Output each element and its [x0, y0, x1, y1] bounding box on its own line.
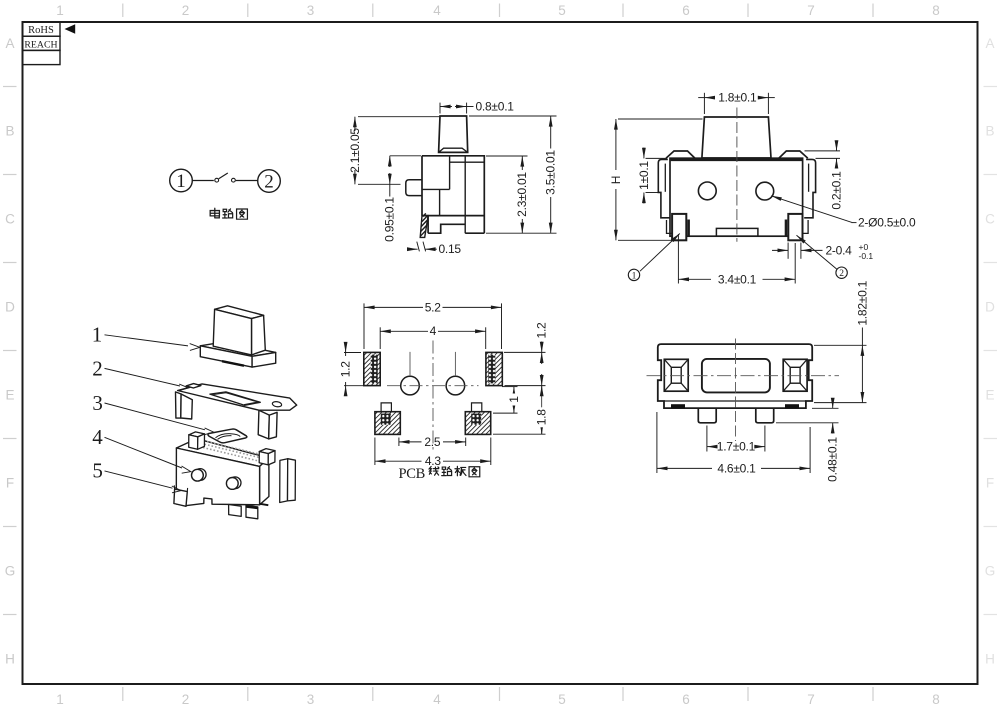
svg-text:F: F [986, 476, 994, 491]
svg-text:C: C [5, 212, 15, 227]
svg-text:E: E [5, 388, 14, 403]
svg-text:3: 3 [307, 3, 315, 18]
svg-text:0.95±0.1: 0.95±0.1 [383, 197, 397, 242]
svg-text:2: 2 [839, 269, 844, 279]
svg-text:8: 8 [932, 692, 940, 707]
svg-text:2: 2 [182, 3, 190, 18]
svg-text:0.15: 0.15 [439, 242, 462, 256]
svg-text:2-0.4: 2-0.4 [826, 243, 853, 257]
svg-text:A: A [985, 36, 994, 51]
svg-text:1: 1 [56, 3, 64, 18]
svg-text:1.8: 1.8 [535, 409, 549, 426]
svg-text:5: 5 [558, 3, 566, 18]
svg-text:1: 1 [176, 171, 186, 192]
svg-text:F: F [6, 476, 14, 491]
svg-text:1.2: 1.2 [339, 361, 353, 378]
svg-text:3: 3 [307, 692, 315, 707]
svg-text:1: 1 [92, 323, 103, 347]
svg-text:G: G [5, 564, 16, 579]
svg-text:C: C [985, 212, 995, 227]
svg-text:H: H [5, 652, 15, 667]
svg-text:4.3: 4.3 [425, 454, 442, 468]
svg-text:6: 6 [682, 3, 690, 18]
svg-text:2-Ø0.5±0.0: 2-Ø0.5±0.0 [858, 216, 916, 230]
svg-text:8: 8 [932, 3, 940, 18]
svg-text:7: 7 [807, 692, 815, 707]
svg-text:PCB: PCB [399, 466, 426, 482]
svg-text:B: B [5, 124, 14, 139]
svg-text:4: 4 [430, 324, 437, 338]
svg-text:2: 2 [92, 356, 103, 380]
svg-text:3.4±0.1: 3.4±0.1 [718, 272, 757, 286]
svg-text:REACH: REACH [24, 39, 57, 50]
svg-text:6: 6 [682, 692, 690, 707]
svg-text:1±0.1: 1±0.1 [637, 161, 651, 190]
svg-text:1: 1 [56, 692, 64, 707]
svg-text:1.82±0.1: 1.82±0.1 [855, 280, 869, 325]
svg-text:1.8±0.1: 1.8±0.1 [718, 91, 757, 105]
svg-text:2: 2 [182, 692, 190, 707]
svg-text:1: 1 [507, 396, 521, 403]
svg-text:5: 5 [92, 459, 103, 483]
svg-text:H: H [609, 176, 623, 184]
svg-text:5: 5 [558, 692, 566, 707]
svg-text:RoHS: RoHS [28, 25, 54, 36]
svg-text:4: 4 [92, 425, 103, 449]
svg-text:4.6±0.1: 4.6±0.1 [717, 461, 756, 475]
svg-text:1.2: 1.2 [535, 322, 549, 339]
svg-text:2.1±0.05: 2.1±0.05 [348, 128, 362, 173]
svg-text:1: 1 [632, 271, 637, 281]
svg-text:7: 7 [807, 3, 815, 18]
svg-text:E: E [985, 388, 994, 403]
svg-text:-0.1: -0.1 [859, 251, 874, 261]
svg-text:4: 4 [433, 3, 441, 18]
svg-text:3.5±0.01: 3.5±0.01 [544, 150, 558, 195]
svg-text:3: 3 [92, 391, 103, 415]
svg-text:H: H [985, 652, 995, 667]
svg-text:2.3±0.01: 2.3±0.01 [515, 172, 529, 217]
svg-text:D: D [5, 300, 15, 315]
svg-text:2.5: 2.5 [424, 435, 441, 449]
svg-text:A: A [5, 36, 14, 51]
svg-text:4: 4 [433, 692, 441, 707]
svg-text:1.7±0.1: 1.7±0.1 [717, 440, 756, 454]
svg-text:0.48±0.1: 0.48±0.1 [826, 437, 840, 482]
svg-text:0.8±0.1: 0.8±0.1 [476, 100, 515, 114]
svg-text:G: G [985, 564, 996, 579]
svg-text:0.2±0.1: 0.2±0.1 [829, 171, 843, 210]
svg-text:D: D [985, 300, 995, 315]
svg-text:B: B [985, 124, 994, 139]
svg-text:5.2: 5.2 [425, 300, 442, 314]
svg-text:2: 2 [264, 172, 274, 193]
